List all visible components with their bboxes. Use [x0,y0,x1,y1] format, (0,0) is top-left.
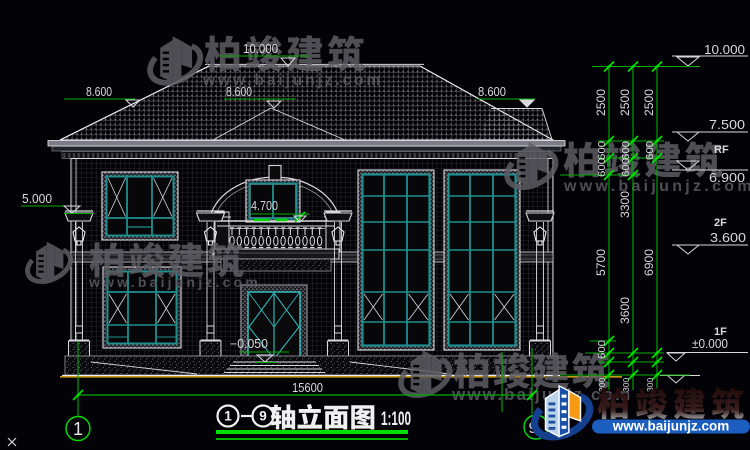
svg-text:2F: 2F [714,217,727,229]
svg-text:15600: 15600 [292,380,323,395]
svg-text:2500: 2500 [596,89,608,116]
svg-text:−0.050: −0.050 [230,337,268,351]
svg-text:4.700: 4.700 [251,199,278,213]
svg-text:RF: RF [714,144,729,156]
svg-text:www.baijunjz.com: www.baijunjz.com [88,274,261,290]
svg-text:9: 9 [259,409,267,424]
svg-text:3600: 3600 [620,297,632,324]
svg-text:1:100: 1:100 [381,409,411,430]
svg-text:±0.000: ±0.000 [692,337,728,351]
svg-text:6900: 6900 [644,249,656,276]
svg-text:5700: 5700 [596,249,608,276]
svg-text:5.000: 5.000 [22,192,52,206]
svg-text:10.000: 10.000 [243,42,278,56]
svg-text:2500: 2500 [644,89,656,116]
svg-text:600: 600 [596,158,608,177]
svg-text:1: 1 [224,409,232,424]
svg-text:6.900: 6.900 [709,171,745,185]
svg-text:3300: 3300 [620,191,632,218]
svg-text:8.600: 8.600 [478,85,506,99]
svg-text:2500: 2500 [620,89,632,116]
svg-text:1: 1 [73,419,83,439]
svg-text:600: 600 [596,141,608,160]
svg-text:600: 600 [620,158,632,177]
svg-text:1F: 1F [714,326,727,338]
svg-text:300: 300 [621,378,631,392]
svg-text:8.600: 8.600 [226,85,252,99]
svg-text:3.600: 3.600 [710,231,746,245]
svg-text:7.500: 7.500 [709,118,745,132]
svg-text:600: 600 [644,141,656,160]
svg-text:www.baijunjz.com: www.baijunjz.com [612,419,730,434]
svg-text:600: 600 [596,340,608,359]
svg-text:600: 600 [620,141,632,160]
svg-text:10.000: 10.000 [704,43,745,57]
svg-text:8.600: 8.600 [86,85,112,99]
